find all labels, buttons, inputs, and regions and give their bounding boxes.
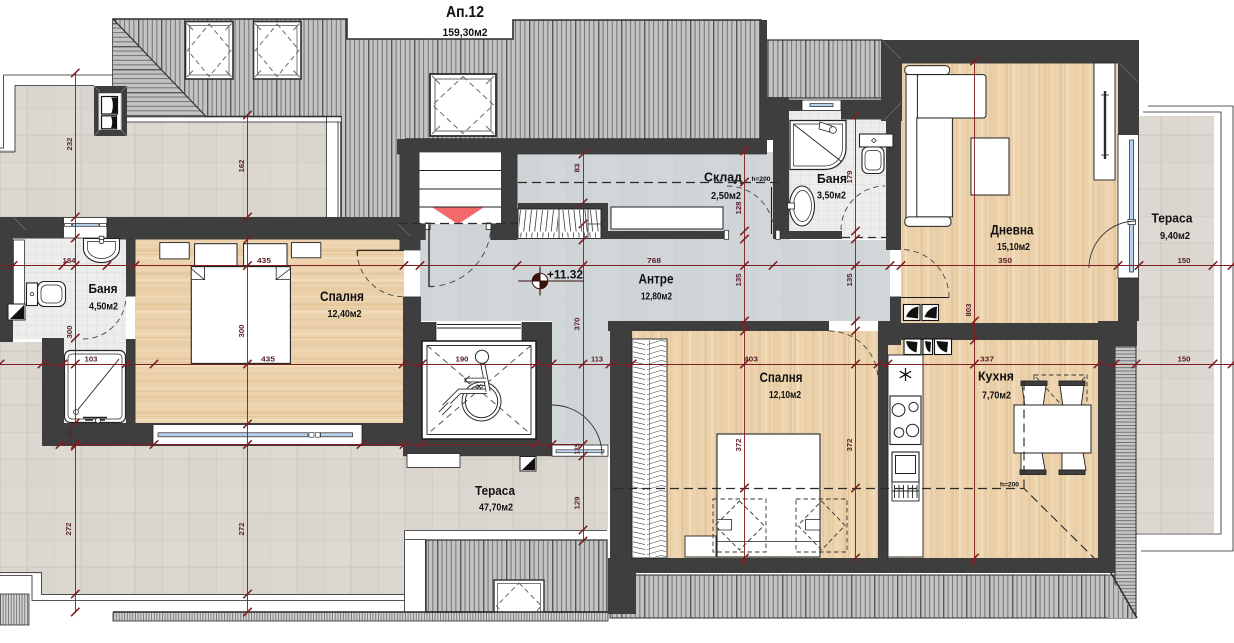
svg-text:35: 35 — [65, 429, 74, 439]
svg-text:300: 300 — [237, 325, 246, 338]
svg-text:h=200: h=200 — [752, 176, 772, 183]
svg-text:4,50м2: 4,50м2 — [89, 302, 118, 313]
svg-text:135: 135 — [573, 443, 582, 455]
svg-text:350: 350 — [998, 256, 1012, 265]
svg-text:103: 103 — [85, 355, 98, 364]
svg-text:Дневна: Дневна — [991, 223, 1034, 238]
svg-text:Склад: Склад — [704, 170, 743, 185]
svg-text:Антре: Антре — [639, 272, 674, 287]
svg-text:Тераса: Тераса — [1152, 211, 1194, 226]
svg-text:Ап.12: Ап.12 — [446, 4, 484, 21]
svg-text:12,40м2: 12,40м2 — [328, 309, 362, 320]
svg-text:Спалня: Спалня — [760, 370, 803, 385]
svg-text:184: 184 — [63, 256, 77, 265]
svg-text:403: 403 — [744, 355, 758, 364]
svg-text:435: 435 — [257, 256, 272, 265]
svg-text:15,10м2: 15,10м2 — [997, 242, 1030, 253]
svg-text:162: 162 — [237, 160, 246, 173]
svg-text:372: 372 — [845, 439, 854, 452]
svg-text:150: 150 — [1178, 256, 1191, 265]
svg-text:2,50м2: 2,50м2 — [711, 191, 741, 202]
svg-text:3,50м2: 3,50м2 — [817, 191, 846, 202]
svg-text:12,10м2: 12,10м2 — [769, 390, 801, 401]
svg-text:768: 768 — [647, 256, 661, 265]
svg-text:337: 337 — [980, 355, 994, 364]
svg-text:83: 83 — [573, 164, 582, 173]
svg-text:7,70м2: 7,70м2 — [982, 391, 1011, 402]
svg-text:135: 135 — [845, 273, 854, 287]
svg-text:12,80м2: 12,80м2 — [641, 292, 672, 303]
svg-text:9,40м2: 9,40м2 — [1160, 231, 1190, 242]
svg-text:190: 190 — [456, 355, 469, 364]
svg-text:159,30м2: 159,30м2 — [443, 27, 488, 39]
svg-text:272: 272 — [64, 523, 73, 536]
svg-text:803: 803 — [964, 304, 973, 317]
svg-text:h=200: h=200 — [1000, 482, 1020, 489]
svg-text:370: 370 — [573, 318, 582, 331]
svg-text:Тераса: Тераса — [475, 483, 516, 498]
svg-text:272: 272 — [237, 523, 246, 536]
svg-text:300: 300 — [65, 326, 74, 339]
svg-text:Спалня: Спалня — [320, 289, 364, 304]
svg-text:Баня: Баня — [817, 172, 847, 186]
svg-text:Баня: Баня — [89, 282, 118, 296]
svg-text:47,70м2: 47,70м2 — [479, 503, 513, 514]
svg-text:232: 232 — [65, 138, 74, 151]
svg-text:372: 372 — [734, 439, 743, 452]
svg-text:128: 128 — [734, 202, 743, 215]
svg-text:135: 135 — [734, 273, 743, 287]
svg-text:150: 150 — [1178, 355, 1191, 364]
svg-text:+11.32: +11.32 — [547, 270, 583, 282]
svg-text:113: 113 — [591, 355, 603, 364]
svg-text:435: 435 — [261, 355, 276, 364]
svg-text:Кухня: Кухня — [978, 370, 1014, 384]
svg-text:129: 129 — [573, 497, 582, 510]
